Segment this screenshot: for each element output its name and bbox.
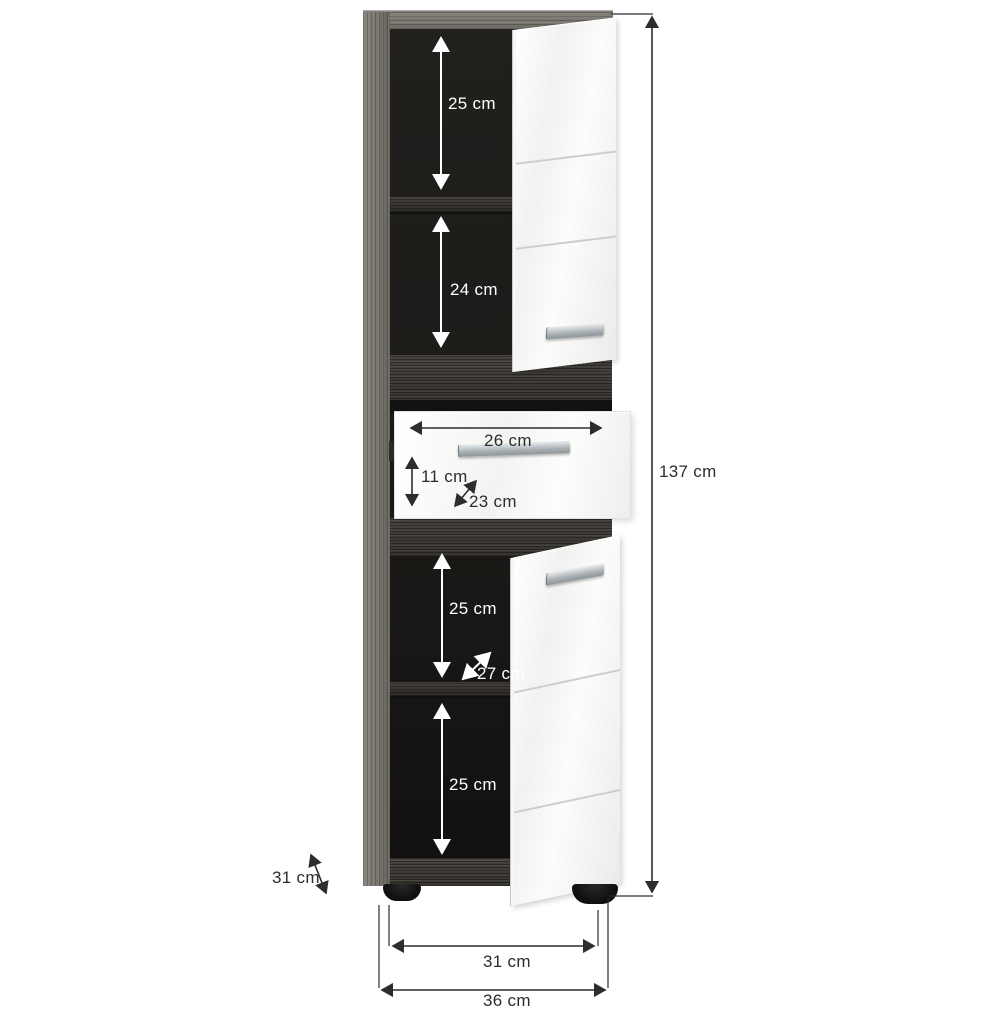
dim-label-side-depth: 31 cm [272,869,320,886]
bottom-door [511,535,620,906]
dim-label-total-height: 137 cm [659,463,717,480]
dim-label-bottom-compartment: 25 cm [449,776,497,793]
cabinet-left-side-panel [363,12,390,886]
dim-line-total-width [379,898,608,990]
foot-right [572,884,618,904]
dim-label-drawer-width: 26 cm [484,432,532,449]
dim-label-shelf-depth: 27 cm [477,665,525,682]
dim-label-total-width: 36 cm [483,992,531,1009]
dim-label-drawer-height: 11 cm [421,468,468,485]
dim-label-third-compartment: 25 cm [449,600,497,617]
product-dimension-diagram: { "diagram": { "kind": "furniture-dimens… [0,0,1000,1000]
top-door-handle [546,323,605,339]
top-door [513,17,616,372]
dim-label-second-compartment: 24 cm [450,281,498,298]
dim-label-drawer-depth: 23 cm [469,493,517,510]
bottom-door-seam-2 [514,789,620,814]
top-door-seam-2 [516,235,616,249]
bottom-door-handle [546,563,604,585]
dim-line-feet-span [389,905,598,946]
bottom-door-seam-1 [514,669,620,694]
dim-label-feet-span: 31 cm [483,953,531,970]
dim-label-top-compartment: 25 cm [448,95,496,112]
top-door-seam-1 [516,150,616,164]
foot-left [383,884,421,901]
